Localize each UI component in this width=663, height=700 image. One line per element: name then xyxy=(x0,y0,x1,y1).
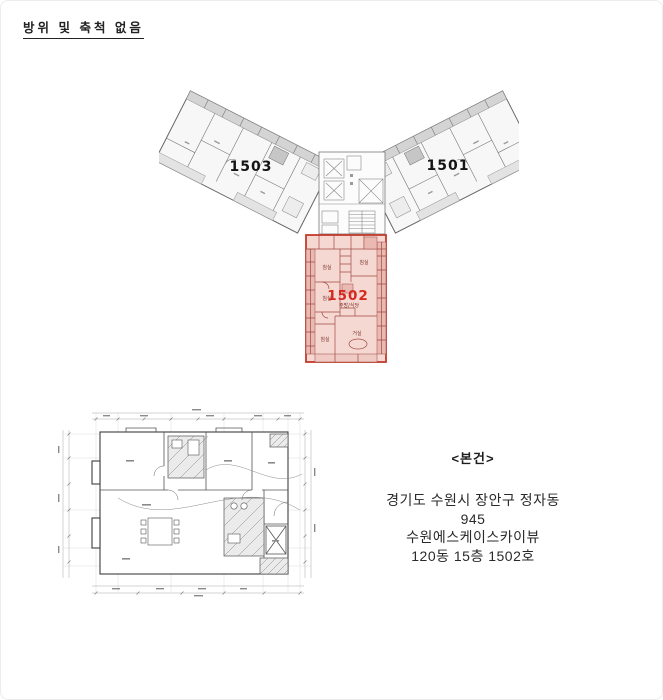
unit-detail-blueprint xyxy=(56,406,318,601)
subject-info-block: <본건> 경기도 수원시 장안구 정자동 945 수원에스케이스카이뷰 120동… xyxy=(351,448,595,565)
document-page: 방위 및 축척 없음 xyxy=(0,0,663,700)
address-line-1: 경기도 수원시 장안구 정자동 xyxy=(351,491,595,510)
bathroom-block xyxy=(168,436,208,478)
address-line-4: 120동 15층 1502호 xyxy=(351,547,595,566)
unit-1502-label: 1502 xyxy=(327,288,369,304)
room-label-living: 거실 xyxy=(352,330,362,337)
room-label-bedroom1: 침실 xyxy=(322,264,332,271)
unit-1503-label: 1503 xyxy=(230,159,273,175)
core-plan xyxy=(319,152,385,234)
hatched-block-bottom xyxy=(260,558,288,574)
kitchen-block xyxy=(224,498,264,556)
scale-note: 방위 및 축척 없음 xyxy=(23,21,144,39)
address-line-2: 945 xyxy=(351,510,595,529)
unit-1501-label: 1501 xyxy=(427,158,470,174)
tower-floor-plan: 침실 침실 침실 침실 주방/식당 거실 1502 1503 1501 xyxy=(159,86,519,376)
hatched-block-top xyxy=(270,434,288,447)
unit-1502-highlight: 침실 침실 침실 침실 주방/식당 거실 1502 xyxy=(306,235,386,362)
room-label-bedroom4: 침실 xyxy=(320,336,330,343)
room-label-bedroom2: 침실 xyxy=(359,259,369,266)
subject-heading: <본건> xyxy=(351,448,595,467)
address-line-3: 수원에스케이스카이뷰 xyxy=(351,528,595,547)
